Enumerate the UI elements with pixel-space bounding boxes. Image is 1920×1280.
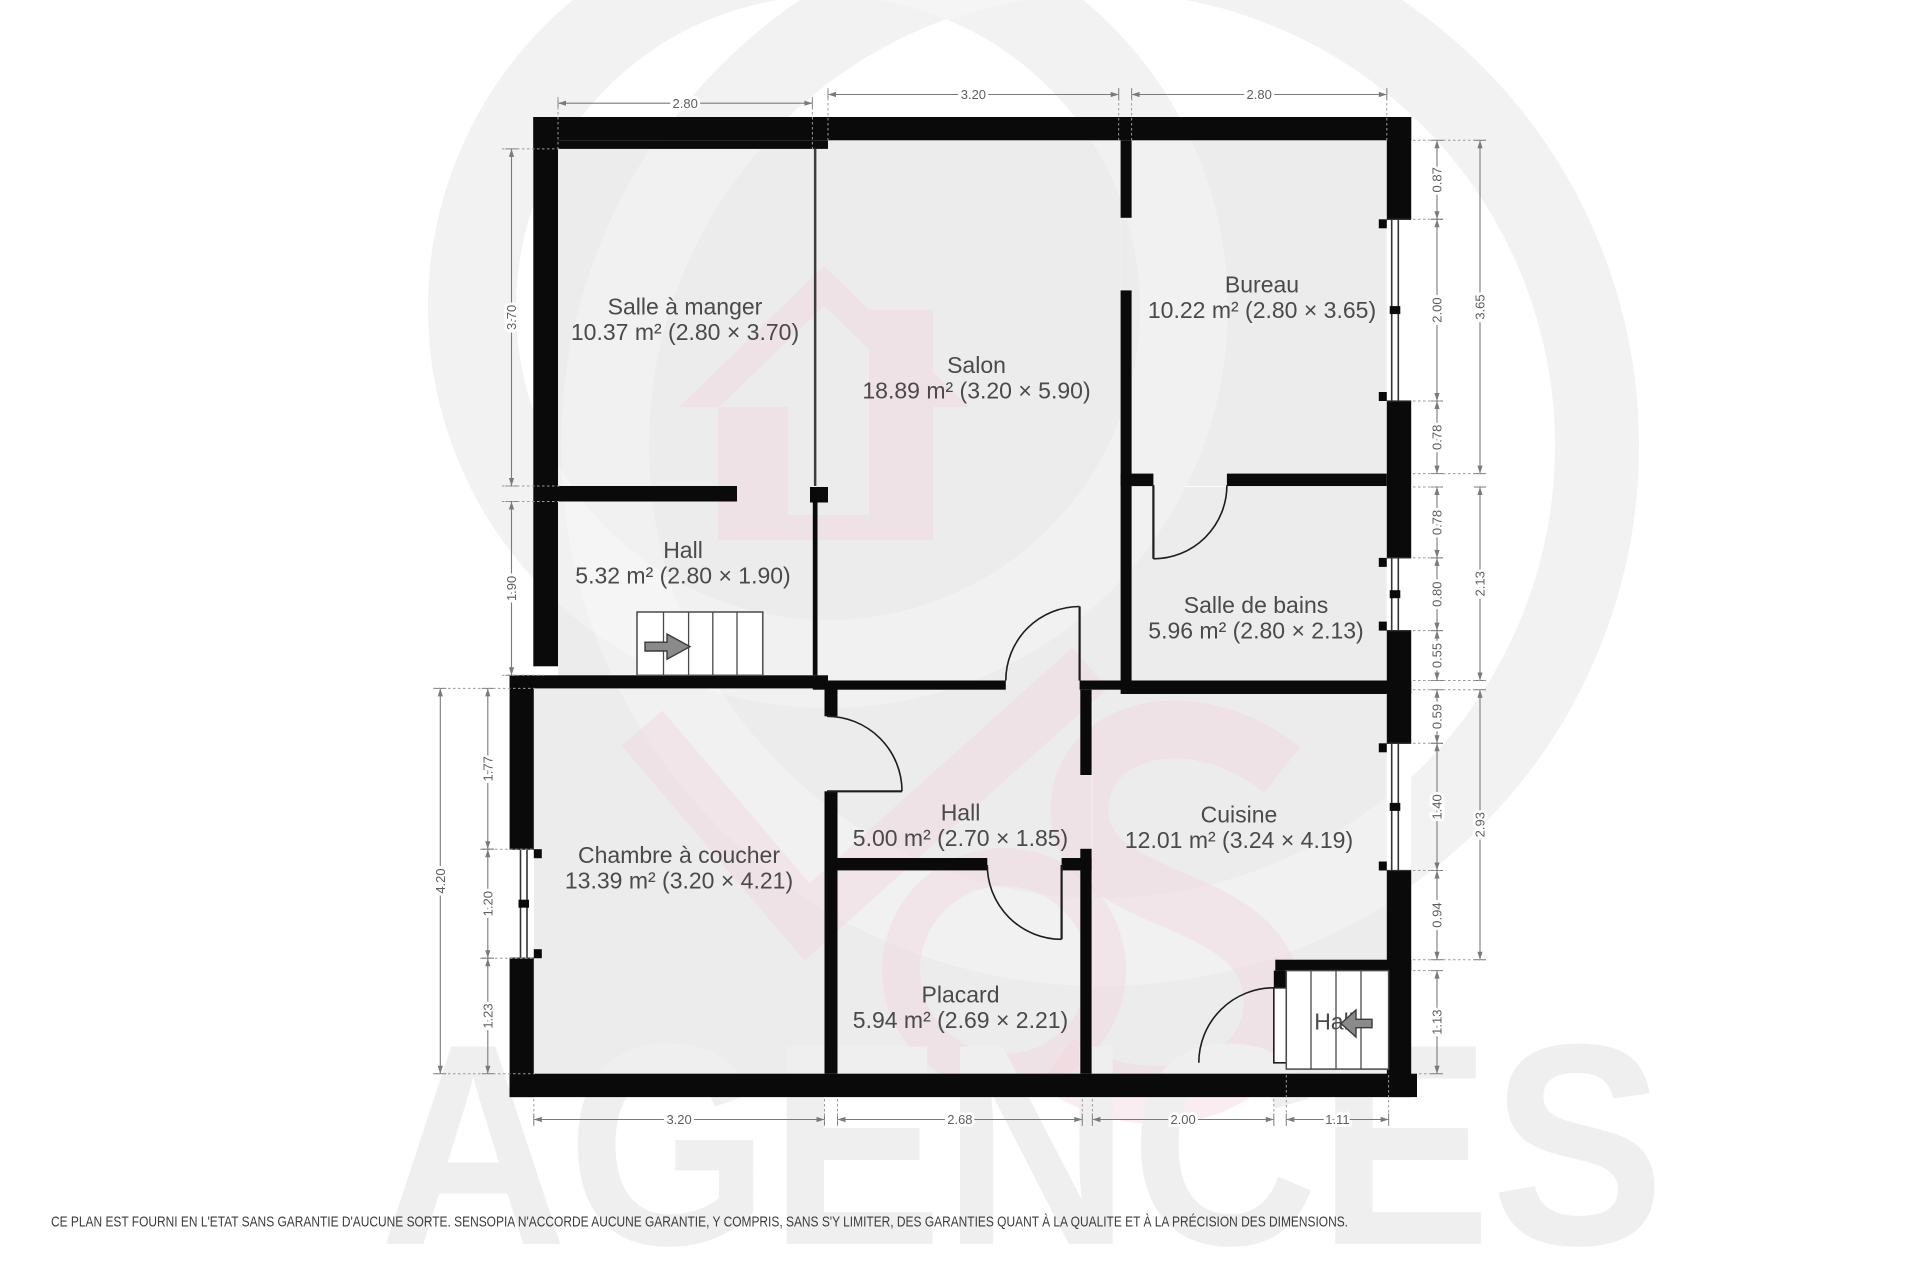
svg-text:12.01 m² (3.24 × 4.19): 12.01 m² (3.24 × 4.19)	[1125, 827, 1353, 853]
svg-text:5.94 m² (2.69 × 2.21): 5.94 m² (2.69 × 2.21)	[853, 1007, 1068, 1033]
svg-text:Hall: Hall	[663, 537, 703, 563]
svg-text:5.00 m² (2.70 × 1.85): 5.00 m² (2.70 × 1.85)	[853, 825, 1068, 851]
svg-text:1.77: 1.77	[481, 756, 496, 781]
svg-text:Placard: Placard	[922, 982, 1000, 1008]
svg-text:Bureau: Bureau	[1225, 272, 1299, 298]
svg-text:Cuisine: Cuisine	[1201, 802, 1278, 828]
svg-text:5.32 m² (2.80 × 1.90): 5.32 m² (2.80 × 1.90)	[575, 563, 790, 589]
svg-text:1.23: 1.23	[481, 1003, 496, 1028]
svg-text:5.96 m² (2.80 × 2.13): 5.96 m² (2.80 × 2.13)	[1148, 618, 1363, 644]
svg-text:0.78: 0.78	[1430, 425, 1445, 450]
svg-text:0.87: 0.87	[1430, 167, 1445, 192]
svg-text:3.20: 3.20	[666, 1112, 691, 1127]
svg-text:Salon: Salon	[947, 352, 1006, 378]
svg-text:Hall: Hall	[941, 800, 981, 826]
svg-text:1.90: 1.90	[504, 576, 519, 601]
svg-text:2.00: 2.00	[1430, 297, 1445, 322]
svg-text:3.70: 3.70	[504, 305, 519, 330]
svg-text:0.55: 0.55	[1430, 643, 1445, 668]
svg-text:CE PLAN EST FOURNI EN L'ETAT S: CE PLAN EST FOURNI EN L'ETAT SANS GARANT…	[51, 1214, 1348, 1231]
svg-text:2.13: 2.13	[1473, 571, 1488, 596]
svg-text:10.22 m² (2.80 × 3.65): 10.22 m² (2.80 × 3.65)	[1148, 297, 1376, 323]
svg-text:13.39 m² (3.20 × 4.21): 13.39 m² (3.20 × 4.21)	[565, 868, 793, 894]
svg-text:2.80: 2.80	[1247, 87, 1272, 102]
svg-text:2.68: 2.68	[947, 1112, 972, 1127]
svg-text:Chambre à coucher: Chambre à coucher	[578, 842, 780, 868]
svg-text:3.20: 3.20	[961, 87, 986, 102]
svg-text:Salle de bains: Salle de bains	[1184, 592, 1329, 618]
svg-text:1.40: 1.40	[1430, 794, 1445, 819]
svg-text:2.00: 2.00	[1170, 1112, 1195, 1127]
svg-text:1.11: 1.11	[1325, 1112, 1349, 1127]
svg-text:2.80: 2.80	[673, 96, 698, 111]
svg-text:0.94: 0.94	[1430, 902, 1445, 927]
svg-text:Salle à manger: Salle à manger	[608, 294, 763, 320]
svg-text:4.20: 4.20	[433, 868, 448, 893]
svg-text:0.59: 0.59	[1430, 704, 1445, 729]
svg-text:2.93: 2.93	[1473, 812, 1488, 837]
svg-text:3.65: 3.65	[1473, 294, 1488, 319]
svg-text:0.80: 0.80	[1430, 582, 1445, 607]
svg-text:0.78: 0.78	[1430, 510, 1445, 535]
svg-text:1.20: 1.20	[481, 891, 496, 916]
svg-text:18.89 m² (3.20 × 5.90): 18.89 m² (3.20 × 5.90)	[862, 378, 1090, 404]
svg-text:1.13: 1.13	[1430, 1010, 1445, 1035]
svg-text:10.37 m² (2.80 × 3.70): 10.37 m² (2.80 × 3.70)	[571, 319, 799, 345]
